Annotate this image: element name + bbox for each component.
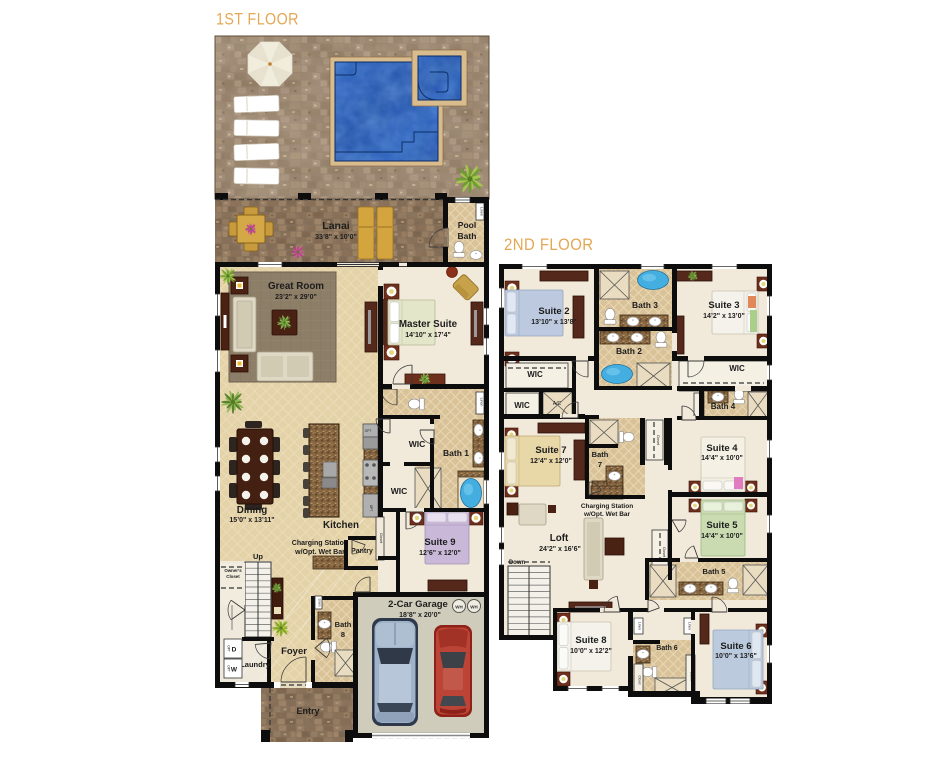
svg-text:Laundry: Laundry (240, 660, 270, 669)
svg-text:Great Room: Great Room (268, 281, 324, 292)
svg-text:OPT: OPT (227, 645, 231, 652)
svg-text:Bath 1: Bath 1 (443, 448, 469, 458)
svg-text:Bath 5: Bath 5 (703, 567, 726, 576)
svg-text:Loft: Loft (550, 533, 569, 544)
svg-text:OPT: OPT (227, 665, 231, 672)
svg-text:15’0" x 13’11": 15’0" x 13’11" (229, 517, 274, 524)
svg-text:WIC: WIC (409, 439, 426, 449)
svg-text:Closet: Closet (656, 435, 660, 445)
svg-text:10’0" x 12’2": 10’0" x 12’2" (570, 648, 612, 655)
svg-text:7: 7 (598, 460, 602, 469)
svg-text:Bath 2: Bath 2 (616, 346, 642, 356)
svg-text:Suite 9: Suite 9 (424, 537, 455, 548)
svg-text:Closet: Closet (226, 574, 240, 579)
svg-text:13’10" x 13’8": 13’10" x 13’8" (531, 319, 577, 326)
svg-text:Linen: Linen (480, 398, 484, 407)
svg-text:Foyer: Foyer (281, 646, 307, 657)
svg-text:WIC: WIC (514, 401, 530, 410)
svg-text:w/Opt. Wet Bar: w/Opt. Wet Bar (294, 549, 345, 556)
svg-text:Pool: Pool (458, 220, 476, 230)
svg-text:WIC: WIC (527, 370, 543, 379)
svg-text:14’4" x 10’0": 14’4" x 10’0" (701, 455, 743, 462)
svg-text:WH: WH (455, 604, 463, 609)
svg-text:Linen: Linen (318, 599, 322, 607)
svg-text:Suite 6: Suite 6 (720, 641, 751, 652)
svg-text:OPT: OPT (369, 505, 373, 512)
svg-text:Up: Up (253, 552, 263, 561)
svg-text:Down: Down (509, 560, 526, 566)
svg-text:1ST FLOOR: 1ST FLOOR (216, 10, 299, 28)
svg-text:24’2" x 16’6": 24’2" x 16’6" (539, 546, 581, 553)
svg-text:18’8" x 20’0": 18’8" x 20’0" (399, 612, 441, 619)
svg-text:Kitchen: Kitchen (323, 520, 359, 531)
svg-text:W: W (231, 667, 238, 674)
svg-text:D: D (232, 647, 237, 654)
svg-text:Bath: Bath (592, 450, 609, 459)
svg-text:Bath: Bath (335, 620, 352, 629)
svg-text:2ND FLOOR: 2ND FLOOR (504, 236, 594, 254)
svg-text:14’10" x 17’4": 14’10" x 17’4" (405, 332, 451, 339)
svg-text:Linen: Linen (480, 207, 484, 216)
svg-text:23’2" x 29’0": 23’2" x 29’0" (275, 294, 317, 301)
svg-text:33’8" x 10’0": 33’8" x 10’0" (315, 234, 357, 241)
svg-text:A/C: A/C (553, 401, 562, 407)
svg-text:Closet: Closet (379, 533, 383, 543)
svg-text:Dining: Dining (237, 505, 267, 516)
svg-text:Charging Station: Charging Station (581, 503, 633, 510)
svg-text:Suite 8: Suite 8 (575, 635, 606, 646)
svg-text:Suite 5: Suite 5 (706, 520, 738, 531)
svg-text:Lanai: Lanai (322, 220, 350, 232)
svg-text:w/Opt. Wet Bar: w/Opt. Wet Bar (583, 511, 631, 518)
svg-text:WIC: WIC (729, 364, 745, 373)
svg-text:8: 8 (341, 630, 345, 639)
svg-text:OPT: OPT (365, 429, 372, 433)
svg-text:Suite 4: Suite 4 (706, 443, 738, 454)
svg-text:WIC: WIC (391, 486, 408, 496)
svg-text:12’4" x 12’0": 12’4" x 12’0" (530, 458, 572, 465)
svg-text:WH: WH (470, 604, 478, 609)
svg-text:Suite 2: Suite 2 (538, 306, 569, 317)
svg-text:Bath 4: Bath 4 (711, 402, 736, 411)
svg-text:Closet: Closet (638, 675, 642, 684)
svg-text:Owner’s: Owner’s (224, 568, 242, 573)
svg-text:Entry: Entry (296, 706, 319, 716)
svg-text:Suite 3: Suite 3 (708, 300, 739, 311)
svg-text:Linen: Linen (688, 622, 692, 630)
svg-text:Bath 3: Bath 3 (632, 300, 658, 310)
svg-text:Master Suite: Master Suite (399, 319, 458, 330)
svg-text:Charging Station: Charging Station (292, 540, 348, 547)
svg-text:Suite 7: Suite 7 (535, 445, 566, 456)
svg-text:Bath: Bath (458, 231, 477, 241)
svg-text:Closet: Closet (662, 547, 666, 557)
svg-text:10’0" x 13’6": 10’0" x 13’6" (715, 653, 757, 660)
svg-text:14’2" x 13’0": 14’2" x 13’0" (703, 313, 745, 320)
svg-text:2-Car Garage: 2-Car Garage (388, 599, 448, 610)
svg-text:14’4" x 10’0": 14’4" x 10’0" (701, 533, 743, 540)
svg-text:Bath 6: Bath 6 (656, 645, 678, 652)
svg-text:Linen: Linen (638, 622, 642, 630)
svg-text:12’6" x 12’0": 12’6" x 12’0" (419, 550, 461, 557)
